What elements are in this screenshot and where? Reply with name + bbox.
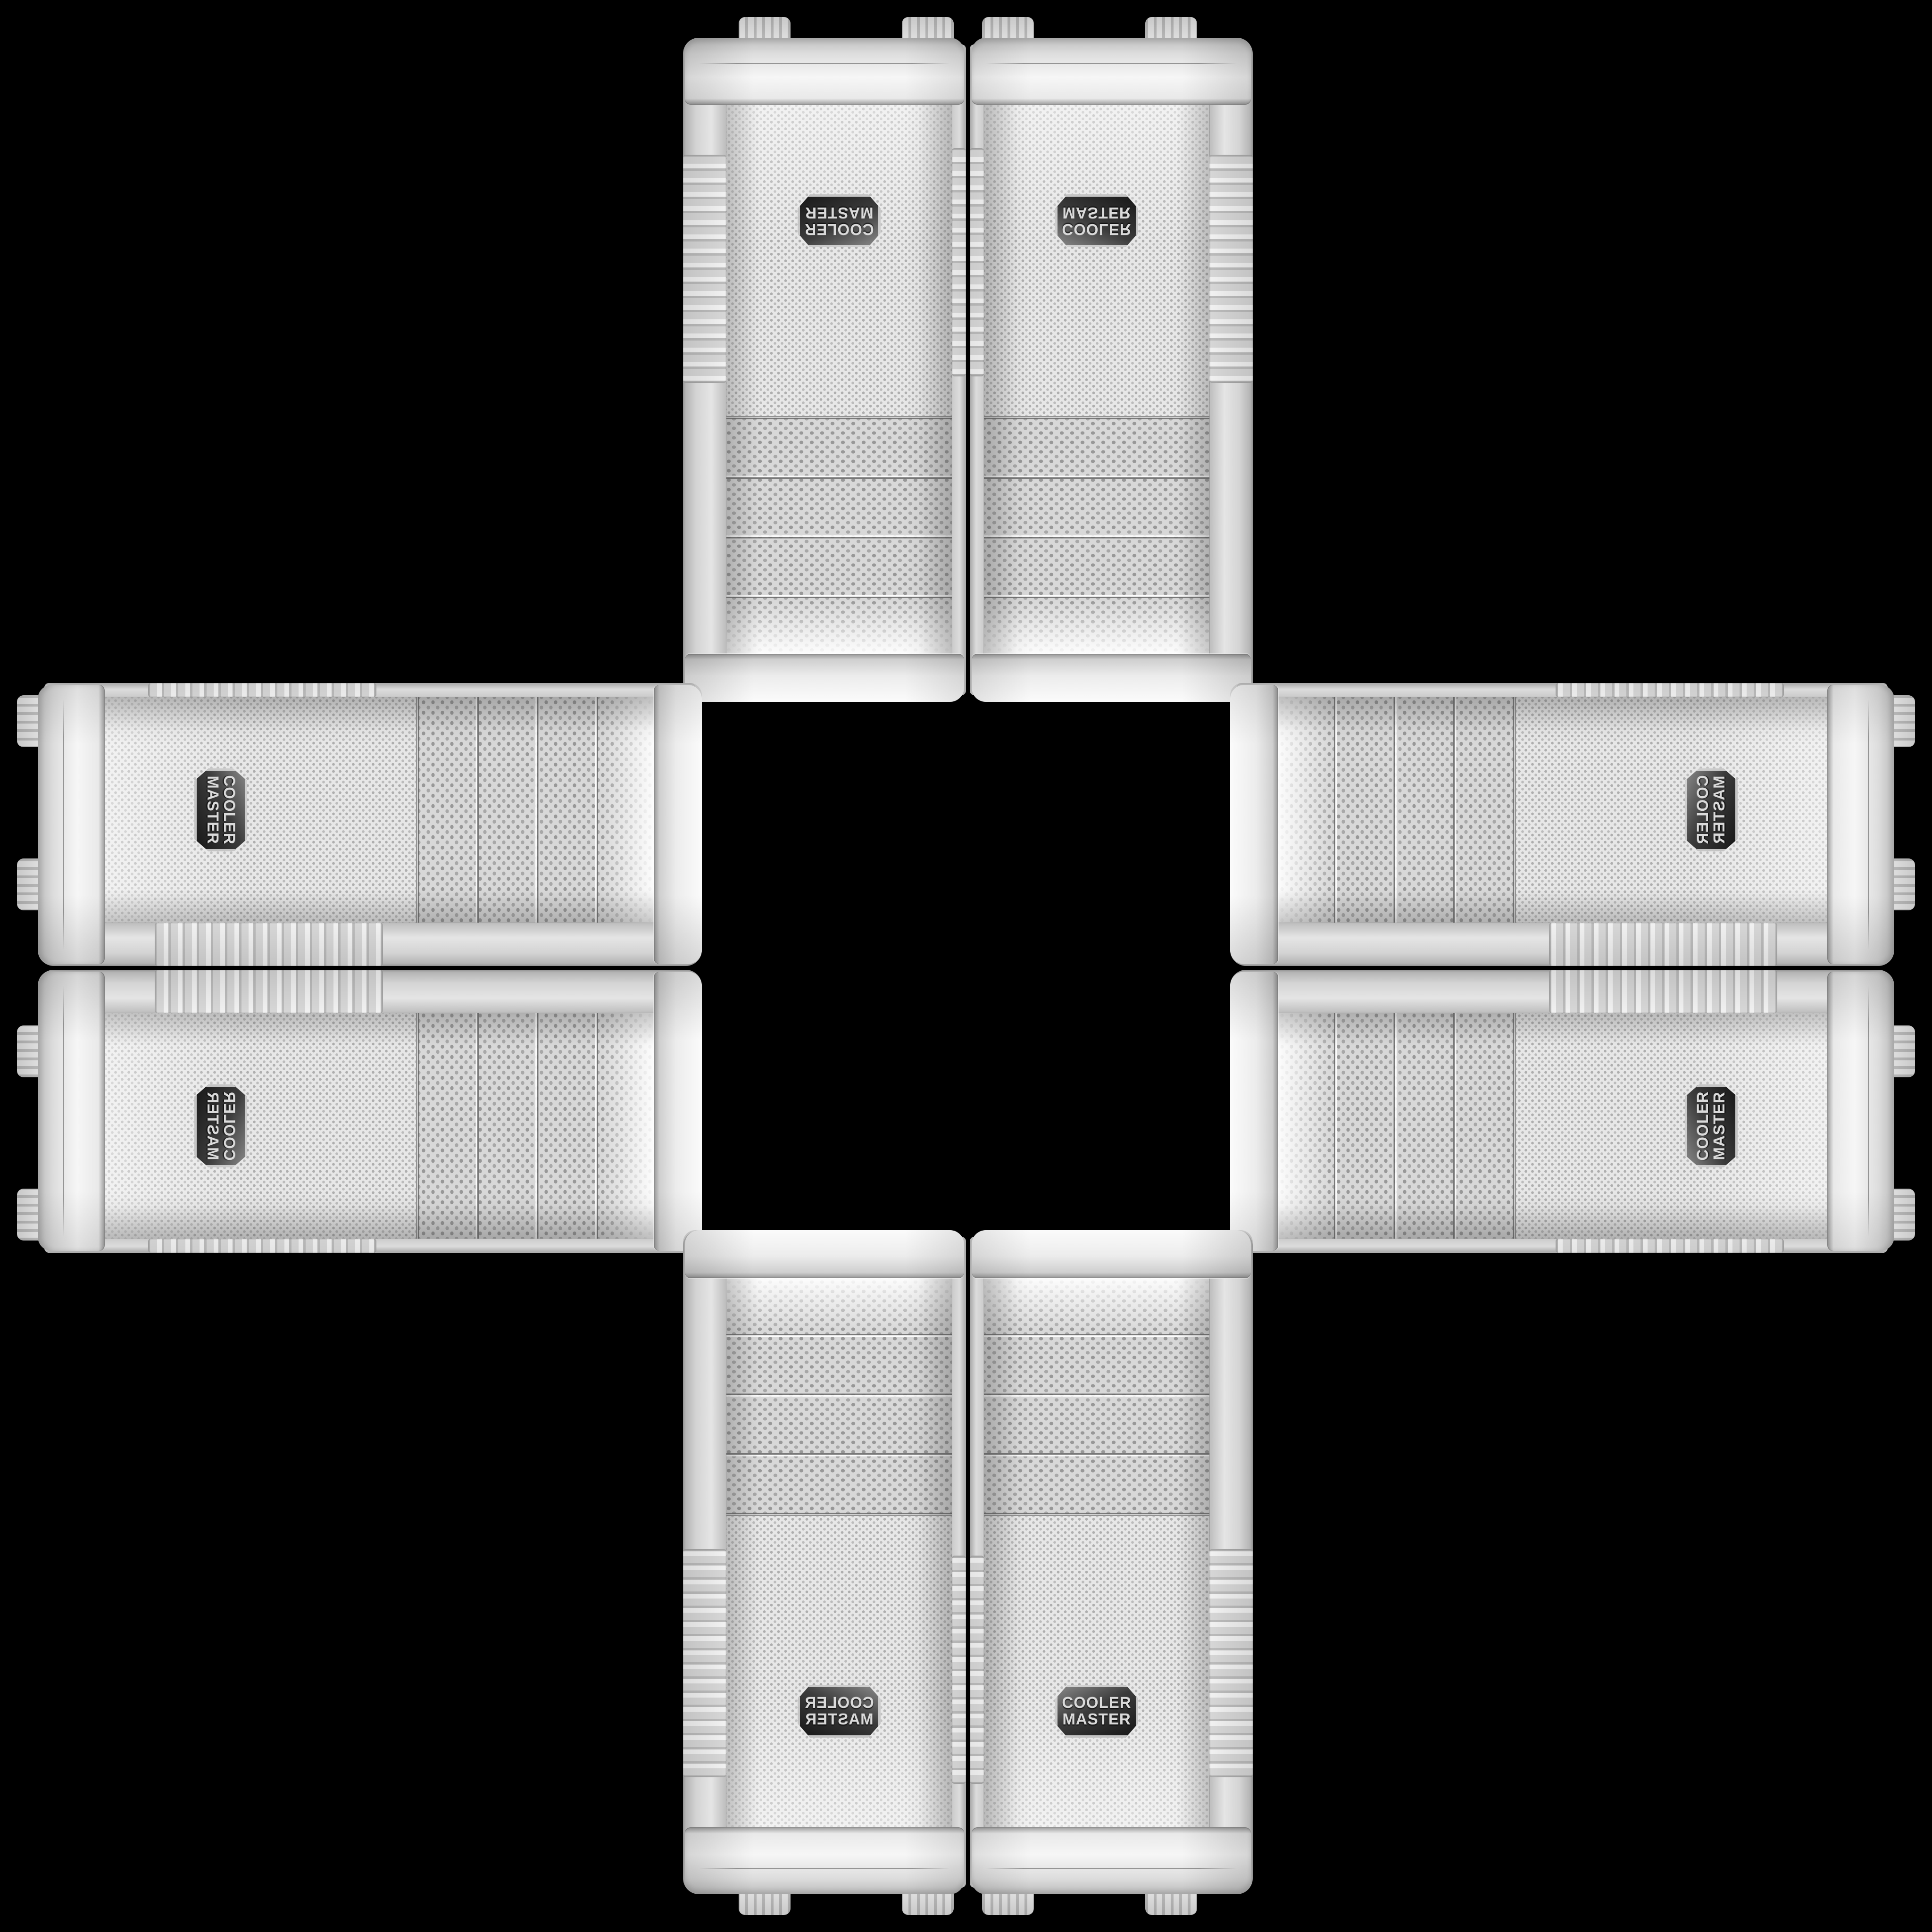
- slot-bottom-left: COOLER MASTER: [683, 1230, 966, 1894]
- bottom-bumper: [1828, 972, 1894, 1251]
- cooler-master-badge: COOLER MASTER: [1055, 1685, 1138, 1738]
- case-front-panel-right-upper: COOLER MASTER: [1230, 683, 1894, 966]
- mesh-front: COOLER MASTER: [1277, 1013, 1828, 1239]
- cooler-master-badge: COOLER MASTER: [194, 768, 247, 851]
- badge-text-line1: COOLER: [1695, 1091, 1711, 1160]
- slot-right-upper: COOLER MASTER: [1230, 683, 1894, 966]
- badge-text-line2: MASTER: [1062, 1711, 1131, 1728]
- grip-ribs: [148, 683, 376, 697]
- mesh-front: COOLER MASTER: [726, 104, 952, 655]
- top-cap: [685, 1230, 964, 1277]
- badge-text-line2: MASTER: [805, 204, 873, 221]
- badge-text-line2: MASTER: [805, 1711, 873, 1728]
- side-rail-outer: [1230, 970, 1894, 1013]
- mesh-front: COOLER MASTER: [984, 104, 1209, 655]
- slot-right-lower: COOLER MASTER: [1230, 970, 1894, 1253]
- drive-bay-covers: [416, 1013, 655, 1239]
- grip-ribs: [155, 970, 383, 1013]
- drive-bay-covers: [726, 1277, 952, 1516]
- mesh-grille: [104, 1013, 416, 1239]
- badge-text-line1: COOLER: [804, 1695, 874, 1711]
- grip-ribs: [683, 155, 726, 383]
- badge-text-line2: MASTER: [204, 1091, 221, 1160]
- top-cap: [1230, 972, 1277, 1251]
- cooler-master-badge: COOLER MASTER: [798, 1685, 881, 1738]
- mesh-grille: [984, 1516, 1209, 1828]
- case-front-panel-bottom-right: COOLER MASTER: [970, 1230, 1253, 1894]
- badge-text-line2: MASTER: [1711, 1091, 1728, 1160]
- side-rail-outer: [38, 923, 702, 966]
- side-rail-inner: [952, 44, 966, 695]
- grip-ribs: [683, 1549, 726, 1777]
- badge-text-line1: COOLER: [804, 221, 874, 237]
- collage-canvas: COOLER MASTER COOLER MASTER: [0, 0, 1932, 1932]
- cooler-master-badge: COOLER MASTER: [1685, 768, 1738, 851]
- mesh-grille: [726, 104, 952, 416]
- side-rail-inner: [952, 1237, 966, 1888]
- side-rail-outer: [1209, 1230, 1253, 1894]
- cooler-master-badge: COOLER MASTER: [1685, 1084, 1738, 1167]
- grip-ribs: [952, 148, 966, 376]
- case-front-panel-top-left: COOLER MASTER: [683, 38, 966, 702]
- badge-text-line1: COOLER: [221, 775, 237, 844]
- mesh-front: COOLER MASTER: [726, 1277, 952, 1828]
- badge-text-line2: MASTER: [1711, 775, 1728, 844]
- side-rail-inner: [970, 44, 984, 695]
- top-cap: [972, 1230, 1251, 1277]
- mesh-front: COOLER MASTER: [104, 697, 655, 923]
- top-cap: [655, 685, 702, 964]
- bottom-bumper: [38, 685, 104, 964]
- case-front-panel-top-right: COOLER MASTER: [970, 38, 1253, 702]
- side-rail-inner: [44, 1239, 695, 1253]
- drive-bay-covers: [1277, 1013, 1516, 1239]
- cooler-master-badge: COOLER MASTER: [194, 1084, 247, 1167]
- top-cap: [1230, 685, 1277, 964]
- cooler-master-badge: COOLER MASTER: [798, 194, 881, 247]
- grip-ribs: [1556, 683, 1784, 697]
- slot-bottom-right: COOLER MASTER: [970, 1230, 1253, 1894]
- cooler-master-badge: COOLER MASTER: [1055, 194, 1138, 247]
- grip-ribs: [1209, 155, 1253, 383]
- drive-bay-covers: [984, 1277, 1209, 1516]
- side-rail-inner: [1237, 683, 1888, 697]
- mesh-grille: [1516, 697, 1828, 923]
- grip-ribs: [155, 923, 383, 966]
- side-rail-outer: [683, 38, 726, 702]
- mesh-front: COOLER MASTER: [1277, 697, 1828, 923]
- side-rail-outer: [1209, 38, 1253, 702]
- grip-ribs: [952, 1556, 966, 1784]
- slot-left-lower: COOLER MASTER: [38, 970, 702, 1253]
- badge-text-line1: COOLER: [1062, 221, 1131, 237]
- top-cap: [685, 655, 964, 702]
- slot-top-right: COOLER MASTER: [970, 38, 1253, 702]
- top-cap: [972, 655, 1251, 702]
- mesh-grille: [984, 104, 1209, 416]
- top-cap: [655, 972, 702, 1251]
- case-front-panel-right-lower: COOLER MASTER: [1230, 970, 1894, 1253]
- drive-bay-covers: [1277, 697, 1516, 923]
- bottom-bumper: [38, 972, 104, 1251]
- side-rail-inner: [44, 683, 695, 697]
- badge-text-line2: MASTER: [1062, 204, 1131, 221]
- side-rail-outer: [38, 970, 702, 1013]
- grip-ribs: [970, 148, 984, 376]
- case-front-panel-bottom-left: COOLER MASTER: [683, 1230, 966, 1894]
- mesh-front: COOLER MASTER: [984, 1277, 1209, 1828]
- case-front-panel-left-lower: COOLER MASTER: [38, 970, 702, 1253]
- grip-ribs: [1549, 970, 1777, 1013]
- grip-ribs: [1556, 1239, 1784, 1253]
- side-rail-inner: [970, 1237, 984, 1888]
- badge-text-line2: MASTER: [204, 775, 221, 844]
- grip-ribs: [1549, 923, 1777, 966]
- mesh-grille: [726, 1516, 952, 1828]
- side-rail-inner: [1237, 1239, 1888, 1253]
- grip-ribs: [970, 1556, 984, 1784]
- bottom-bumper: [972, 38, 1251, 104]
- bottom-bumper: [685, 38, 964, 104]
- bottom-bumper: [1828, 685, 1894, 964]
- slot-left-upper: COOLER MASTER: [38, 683, 702, 966]
- badge-text-line1: COOLER: [1695, 775, 1711, 844]
- bottom-bumper: [685, 1828, 964, 1894]
- badge-text-line1: COOLER: [221, 1091, 237, 1160]
- bottom-bumper: [972, 1828, 1251, 1894]
- mesh-grille: [104, 697, 416, 923]
- drive-bay-covers: [416, 697, 655, 923]
- side-rail-outer: [683, 1230, 726, 1894]
- side-rail-outer: [1230, 923, 1894, 966]
- drive-bay-covers: [726, 416, 952, 655]
- grip-ribs: [148, 1239, 376, 1253]
- mesh-grille: [1516, 1013, 1828, 1239]
- mesh-front: COOLER MASTER: [104, 1013, 655, 1239]
- grip-ribs: [1209, 1549, 1253, 1777]
- slot-top-left: COOLER MASTER: [683, 38, 966, 702]
- badge-text-line1: COOLER: [1062, 1695, 1131, 1711]
- drive-bay-covers: [984, 416, 1209, 655]
- case-front-panel-left-upper: COOLER MASTER: [38, 683, 702, 966]
